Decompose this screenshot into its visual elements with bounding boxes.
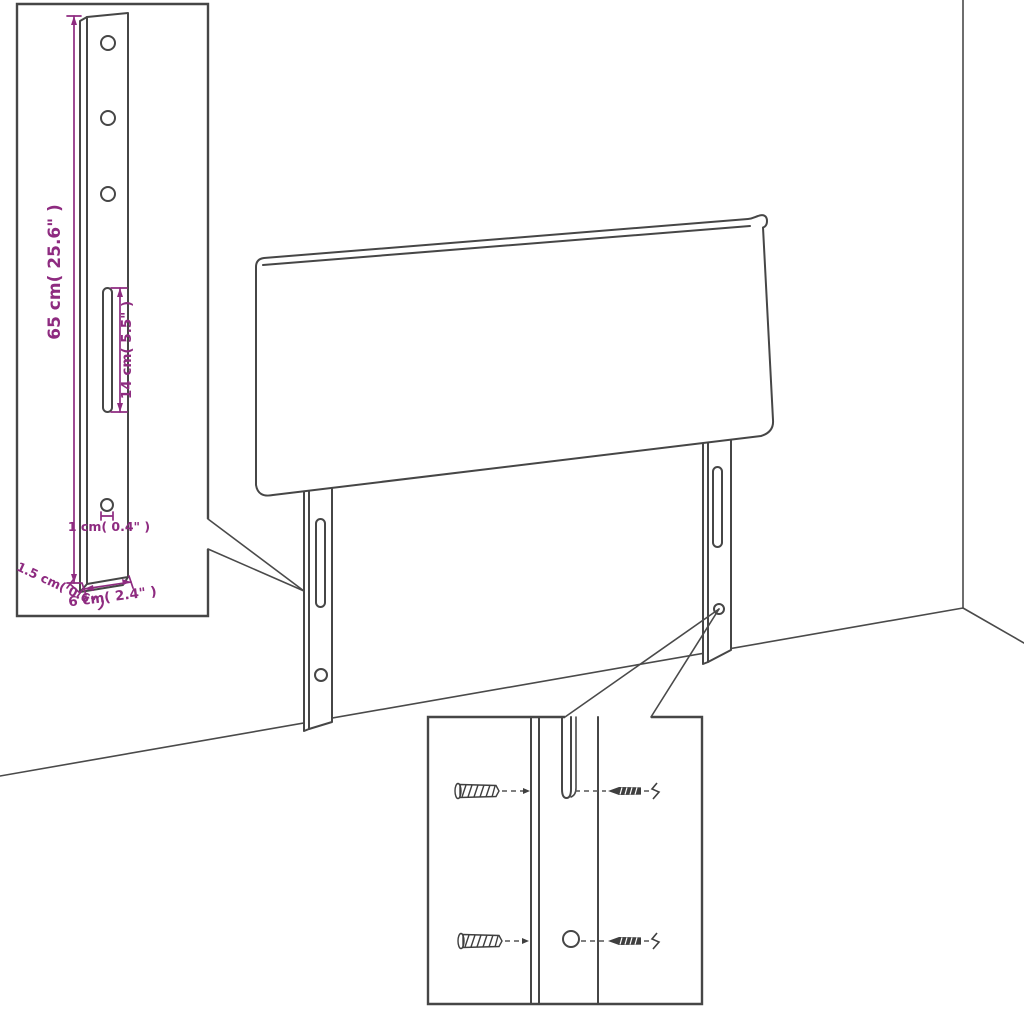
headboard-left-leg (304, 476, 332, 731)
bracket-detail-inset: 65 cm( 25.6" ) 14 cm( 5.5" ) 1 cm( 0.4" … (14, 4, 208, 616)
label-hole-size: 1 cm( 0.4" ) (68, 519, 150, 534)
floor-line-right (963, 608, 1024, 643)
bracket-side-face (80, 17, 87, 592)
right-leg-slot (713, 467, 722, 547)
label-bracket-height: 65 cm( 25.6" ) (45, 204, 65, 340)
label-slot-length: 14 cm( 5.5" ) (119, 301, 135, 399)
headboard-panel (256, 215, 773, 495)
bracket-callout-lines (208, 519, 304, 591)
inset-bg (428, 717, 702, 1004)
diagram-canvas: 65 cm( 25.6" ) 14 cm( 5.5" ) 1 cm( 0.4" … (0, 0, 1024, 1024)
wall-mount-detail-inset (428, 717, 702, 1004)
left-leg-slot (316, 519, 325, 607)
wall-mount-callout-lines (565, 609, 719, 717)
panel-outline (256, 215, 773, 495)
left-leg-hole (315, 669, 327, 681)
